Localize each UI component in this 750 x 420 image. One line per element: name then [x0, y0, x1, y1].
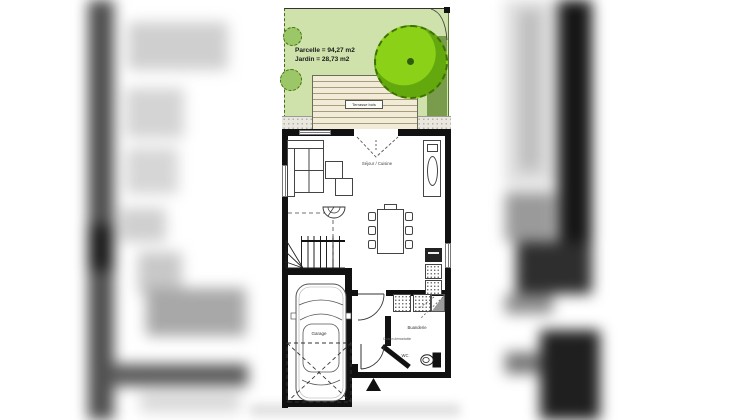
entry-door-arc	[361, 346, 384, 369]
room-label-wc: WC	[396, 353, 414, 358]
laundry-door-arc	[358, 294, 384, 320]
toilet-tank	[433, 353, 442, 368]
laundry-dashed-lines	[418, 297, 443, 318]
french-door-swing	[357, 137, 398, 157]
car-icon	[291, 284, 351, 401]
room-label-garage: Garage	[302, 331, 336, 336]
entrance-arrow-icon	[366, 378, 381, 391]
room-label-laundry: Buanderie	[399, 325, 435, 330]
gate-post	[444, 7, 450, 13]
stairs-winder	[286, 240, 345, 268]
screenshot-canvas: Terrasse bois Parcelle = 94,27 m2 Jardin…	[0, 0, 750, 420]
room-label-living-kitchen: Séjour / Cuisine	[345, 161, 409, 166]
beam-dashed-line	[288, 213, 333, 259]
plan-linework	[0, 0, 750, 420]
gate-swing-arc	[431, 9, 447, 40]
half-round-furniture	[323, 207, 345, 218]
partition-note-label: Cloison démontable	[381, 337, 413, 341]
